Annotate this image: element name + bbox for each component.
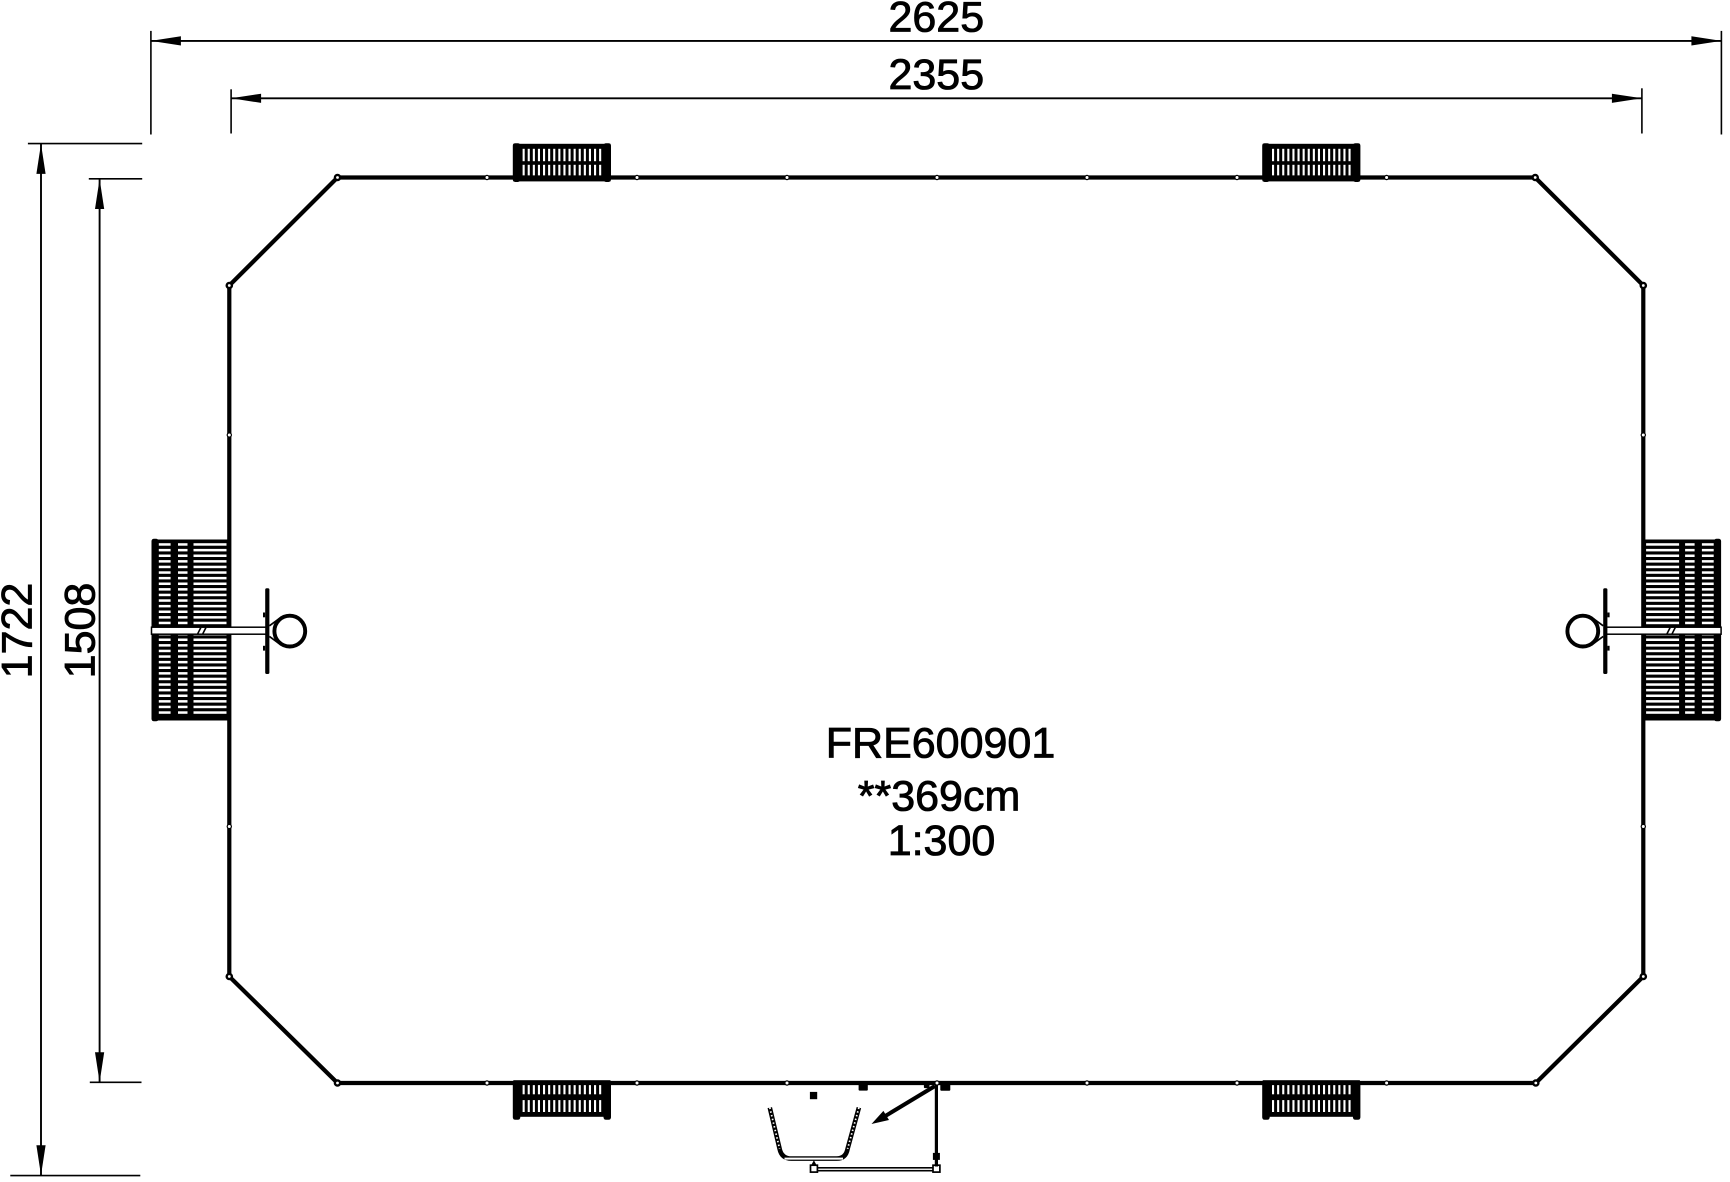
svg-text:1722: 1722: [0, 583, 42, 679]
svg-text:1:300: 1:300: [888, 817, 996, 865]
svg-text:FRE600901: FRE600901: [826, 720, 1056, 768]
svg-text:**369cm: **369cm: [858, 773, 1021, 821]
svg-text:2355: 2355: [888, 51, 984, 99]
svg-text:2625: 2625: [888, 0, 984, 42]
svg-text:1508: 1508: [57, 583, 105, 679]
